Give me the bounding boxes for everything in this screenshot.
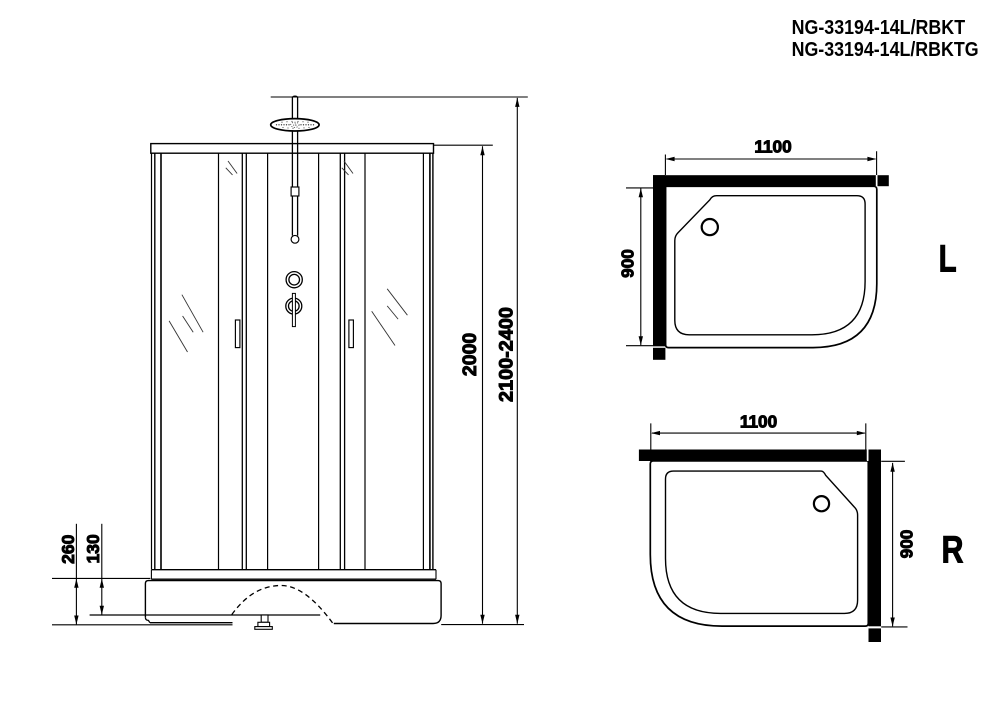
svg-text:900: 900 bbox=[618, 249, 638, 278]
svg-text:1100: 1100 bbox=[740, 411, 777, 431]
svg-text:R: R bbox=[942, 529, 964, 571]
svg-text:2100-2400: 2100-2400 bbox=[495, 307, 517, 402]
svg-text:2000: 2000 bbox=[459, 333, 481, 377]
svg-text:1100: 1100 bbox=[754, 137, 791, 157]
svg-text:900: 900 bbox=[896, 530, 916, 559]
svg-text:L: L bbox=[939, 239, 957, 281]
svg-text:260: 260 bbox=[58, 534, 78, 563]
svg-text:130: 130 bbox=[83, 534, 103, 563]
svg-text:NG-33194-14L/RBKT: NG-33194-14L/RBKT bbox=[792, 16, 966, 39]
svg-text:NG-33194-14L/RBKTG: NG-33194-14L/RBKTG bbox=[792, 38, 979, 61]
